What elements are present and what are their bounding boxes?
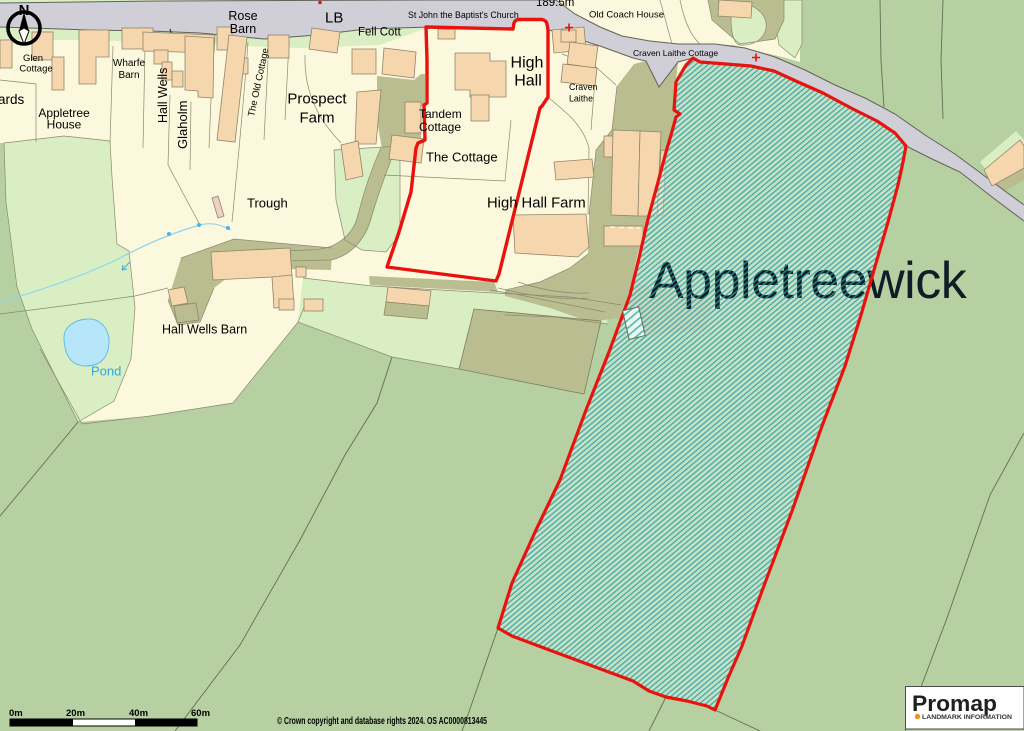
svg-text:The Cottage: The Cottage <box>426 150 498 165</box>
svg-text:Hall: Hall <box>514 73 542 90</box>
svg-text:LB: LB <box>325 10 343 27</box>
svg-text:Farm: Farm <box>300 110 335 127</box>
svg-text:© Crown copyright and database: © Crown copyright and database rights 20… <box>277 715 487 727</box>
svg-text:189.5m: 189.5m <box>536 0 574 9</box>
svg-text:High: High <box>511 55 544 72</box>
svg-text:60m: 60m <box>191 708 210 719</box>
svg-text:Cottage: Cottage <box>19 64 52 75</box>
svg-text:20m: 20m <box>66 708 85 719</box>
svg-text:Barn: Barn <box>118 70 139 81</box>
svg-text:Old Coach House: Old Coach House <box>589 10 664 21</box>
svg-text:Laithe: Laithe <box>569 94 593 104</box>
svg-text:Wharfe: Wharfe <box>113 58 146 69</box>
svg-text:Hall Wells: Hall Wells <box>156 68 170 123</box>
svg-text:Hall Wells Barn: Hall Wells Barn <box>162 323 247 337</box>
svg-text:LANDMARK INFORMATION: LANDMARK INFORMATION <box>922 714 1012 721</box>
svg-text:Glen: Glen <box>23 53 43 64</box>
svg-text:Craven Laithe Cottage: Craven Laithe Cottage <box>633 48 718 58</box>
svg-text:House: House <box>47 118 82 132</box>
svg-text:High Hall Farm: High Hall Farm <box>487 196 586 212</box>
svg-text:40m: 40m <box>129 708 148 719</box>
svg-text:Trough: Trough <box>247 196 288 211</box>
svg-text:Rose: Rose <box>228 9 257 23</box>
svg-text:Fell Cott: Fell Cott <box>358 27 402 39</box>
svg-text:Tandem: Tandem <box>419 107 462 121</box>
svg-text:Glaholm: Glaholm <box>175 101 190 149</box>
svg-text:Barn: Barn <box>230 22 256 36</box>
svg-text:Craven: Craven <box>569 82 597 92</box>
svg-text:Promap: Promap <box>912 691 997 716</box>
svg-text:Pond: Pond <box>91 364 121 379</box>
svg-text:ards: ards <box>0 92 25 107</box>
svg-text:0m: 0m <box>9 708 23 719</box>
svg-text:Cottage: Cottage <box>419 120 461 134</box>
svg-text:St John the Baptist's Church: St John the Baptist's Church <box>408 10 519 20</box>
svg-text:Prospect: Prospect <box>287 91 347 108</box>
